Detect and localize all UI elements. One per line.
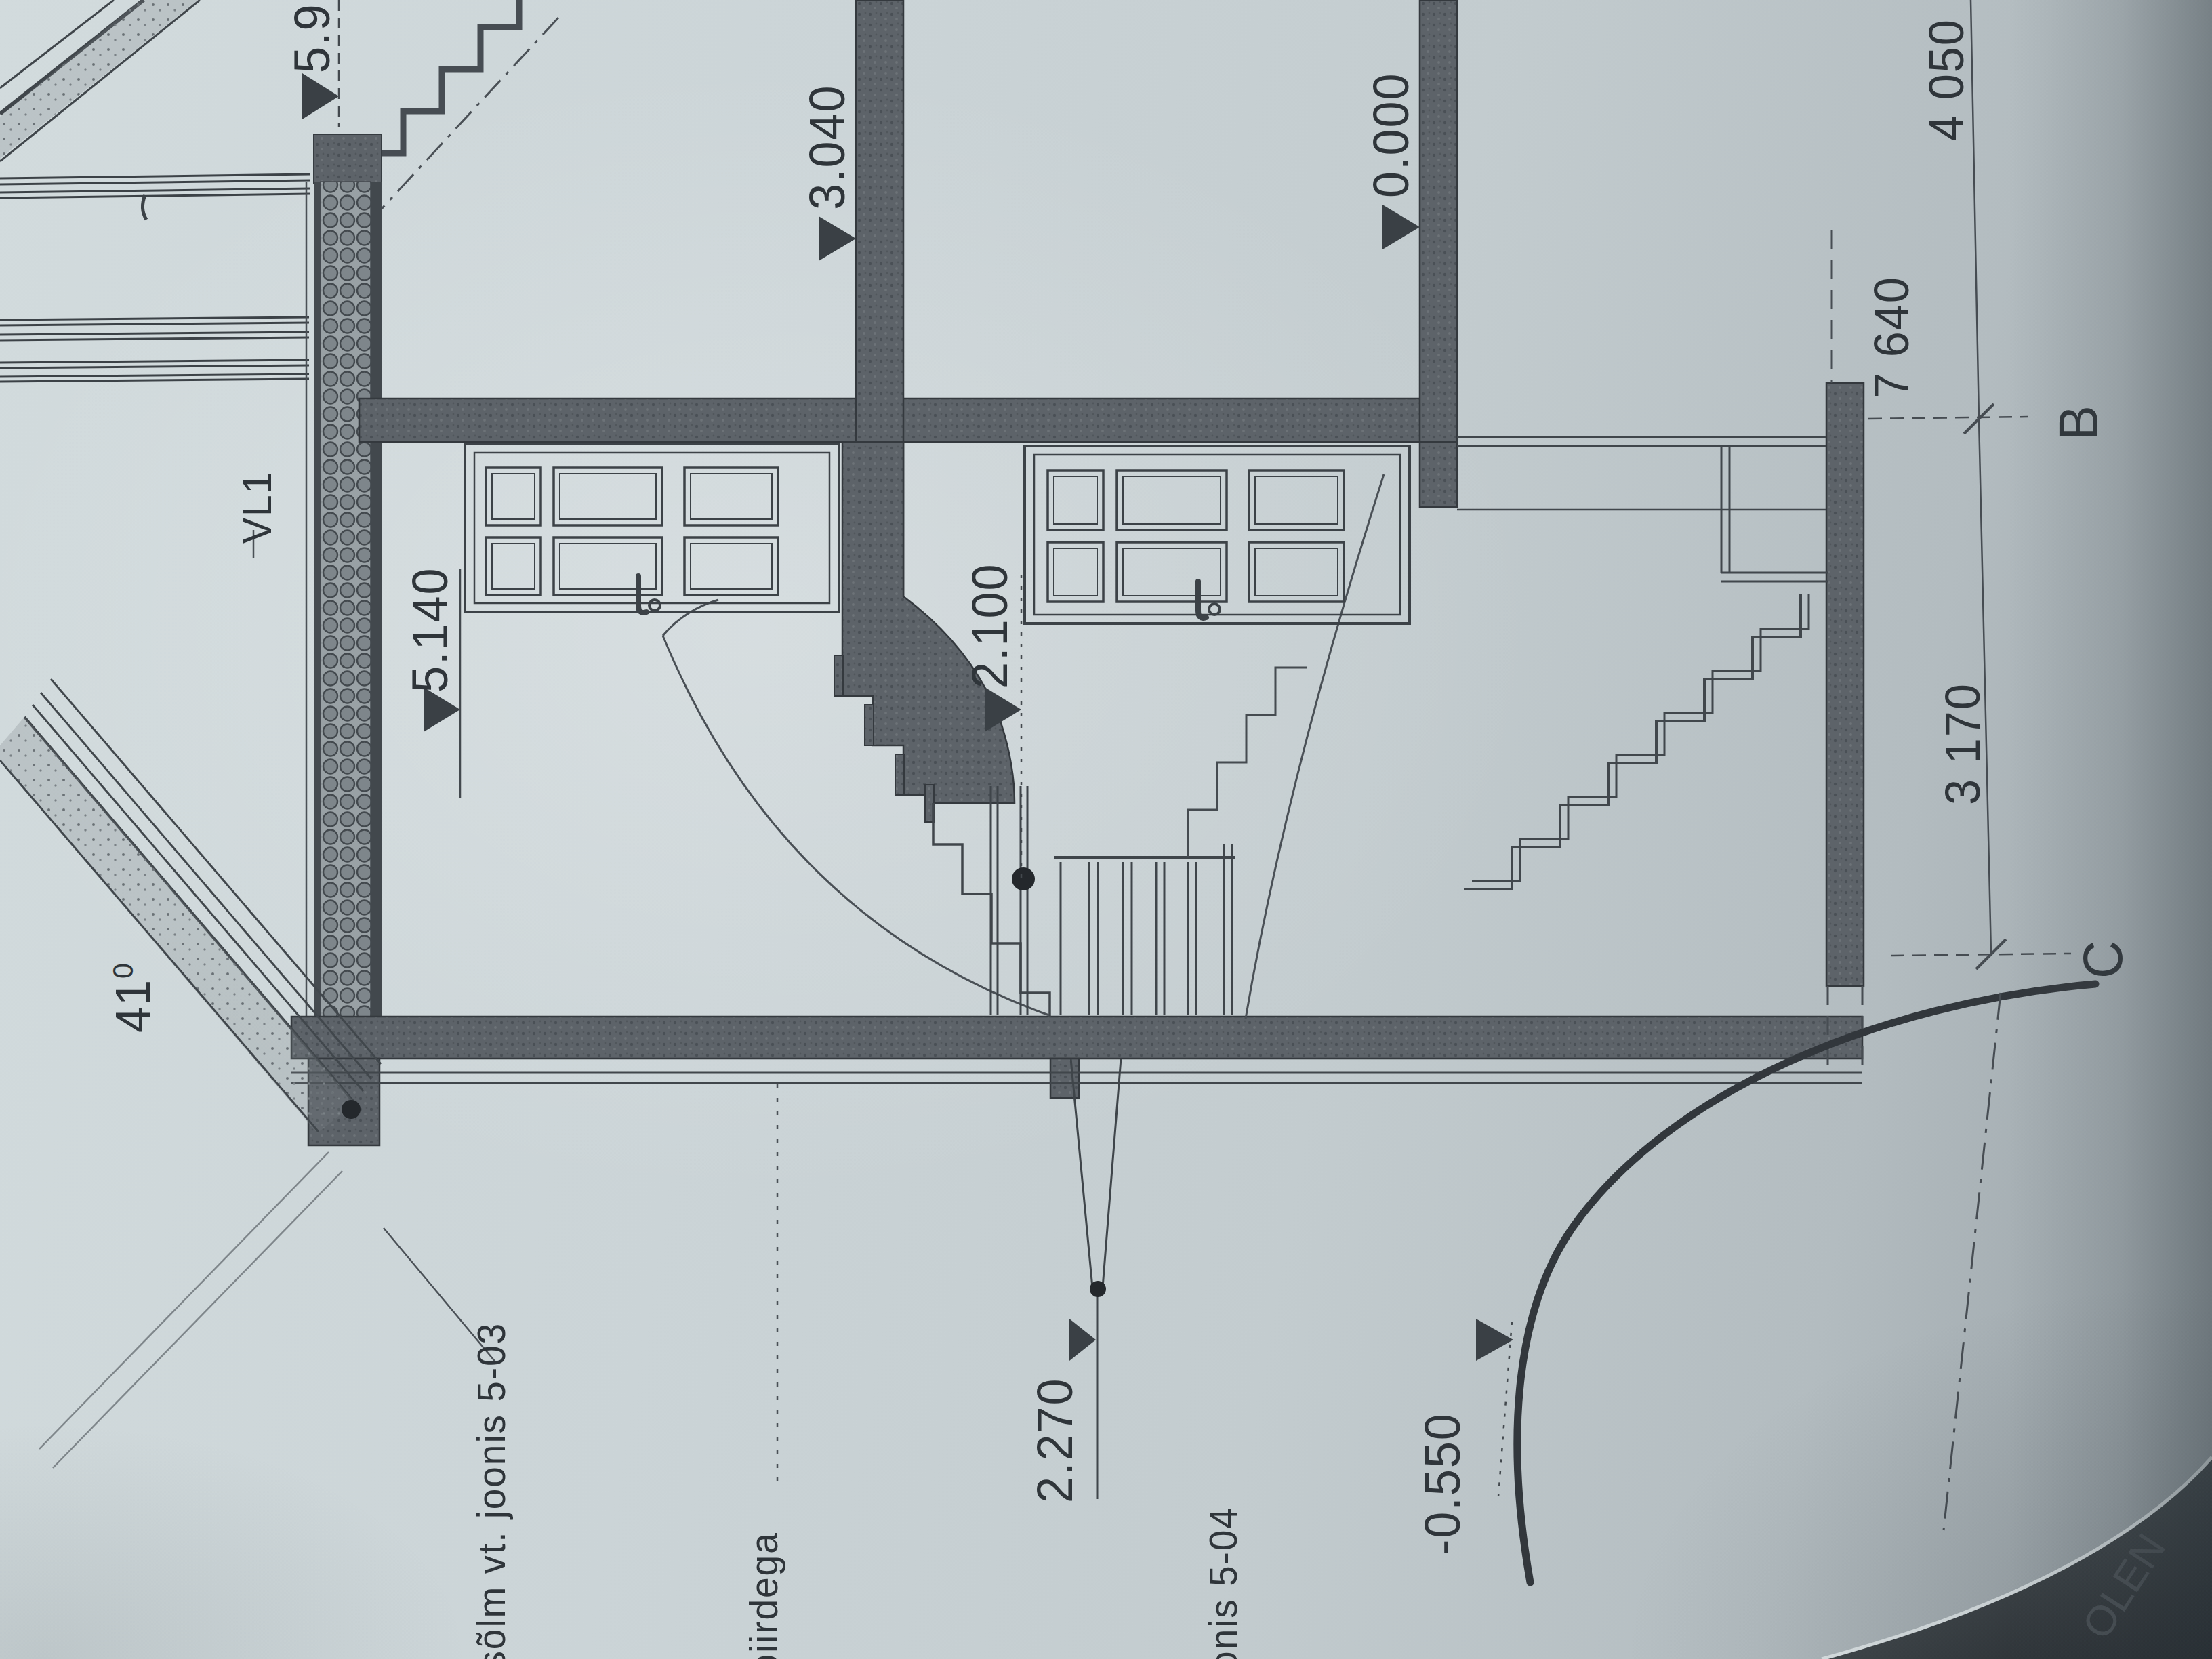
section-drawing-linework: [0, 0, 2212, 1659]
dimension-label-7640: 7 640: [1867, 276, 1916, 398]
marker-triangle-3040: [819, 216, 856, 261]
elevation-label-2100: 2.100: [965, 563, 1015, 689]
door-handle: [1198, 581, 1206, 618]
step-nosing: [834, 655, 843, 696]
section-walls: [291, 0, 1864, 1145]
grid-axis-C-line: [1891, 954, 2071, 956]
marker-triangle-2270: [1069, 1319, 1096, 1361]
slab-0000-edge-beam: [1420, 442, 1457, 507]
elevation-label-2270: 2.270: [1030, 1378, 1080, 1503]
right-staircase: [1464, 447, 1828, 889]
dimension-label-4050: 4 050: [1922, 18, 1971, 141]
node-dot: [1090, 1281, 1106, 1297]
roof-angle-value: 41: [106, 979, 160, 1033]
marker-triangle-0000: [1382, 205, 1420, 249]
photo-of-architectural-section-drawing: { "document": { "kind": "architectural b…: [0, 0, 2212, 1659]
grid-axis-label-C: C: [2075, 939, 2131, 979]
door-keyhole: [649, 600, 660, 611]
step-nosing: [865, 705, 874, 745]
door-keyhole: [1209, 604, 1220, 615]
concrete-stair-section: [834, 442, 1050, 1017]
marker-triangle-5140: [424, 687, 460, 732]
marker-triangle-2100: [985, 687, 1021, 732]
boundary-dashdot: [1944, 993, 2001, 1530]
elevation-label-3040: 3.040: [802, 85, 853, 210]
roof-angle-label: 410: [108, 963, 157, 1033]
paper-sheet: 5.9 3.040 0.000 5.140 2.100 2.270 -0.550…: [0, 0, 2212, 1659]
left-exterior-wall-cut: [291, 1017, 1862, 1059]
door-elevation-lower: [1025, 446, 1410, 623]
door-elevation-upper: [465, 444, 839, 613]
step-nosing: [895, 754, 904, 795]
interior-wall-cut: [359, 398, 1457, 442]
marker-triangle-m0550: [1476, 1319, 1513, 1361]
note-stair-railing: oos trepipiirdega: [744, 1532, 783, 1659]
elevation-label-m0550: -0.550: [1418, 1412, 1468, 1555]
marker-triangle-59: [302, 73, 339, 119]
slab-0000-cut: [1420, 0, 1457, 442]
elevation-label-0000: 0.000: [1366, 73, 1416, 198]
insulation-bubble-band: [321, 182, 371, 1017]
eave-block: [314, 134, 382, 183]
grid-axis-B-line: [1868, 417, 2028, 419]
node-dot: [1012, 867, 1035, 890]
note-eave-detail: sta sõlm vt. joonis 5-03: [472, 1322, 511, 1659]
dimension-label-3170: 3 170: [1938, 682, 1987, 805]
note-canopy-detail: arikatus vt. joonis 5-04: [1204, 1507, 1243, 1659]
elevation-label-59: 5.9: [287, 3, 337, 73]
grid-axis-label-B: B: [2051, 404, 2106, 441]
tag-label-vl1: VL1: [237, 471, 278, 544]
lower-flight-outline: [1188, 668, 1307, 857]
stair-railing: [991, 786, 1235, 1015]
roof-edge-lines-top-left: [0, 0, 200, 161]
dimension-lines: [1868, 0, 2071, 969]
node-dot: [342, 1100, 361, 1119]
roof-angle-sup: 0: [106, 963, 139, 979]
floor-finish-lines: [291, 437, 1862, 1083]
right-exterior-wall-cut: [1826, 383, 1864, 986]
clip-mark: [142, 195, 146, 220]
roof-beam-bands: [0, 174, 310, 382]
eave-and-insulated-slab: [306, 134, 382, 1017]
elevation-label-5140: 5.140: [405, 567, 455, 693]
